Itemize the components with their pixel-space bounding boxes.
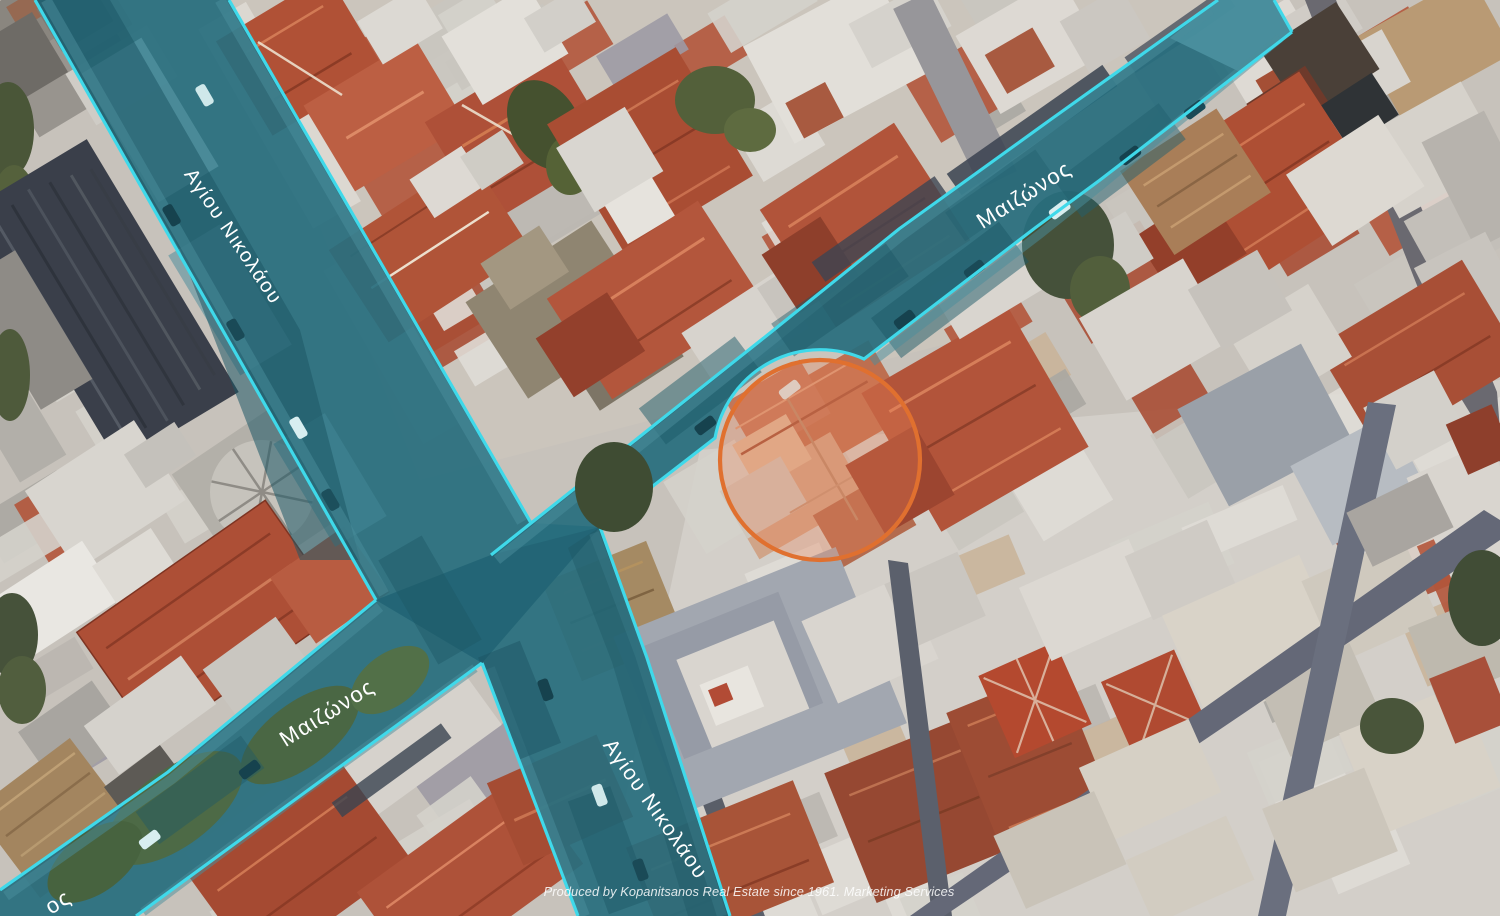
svg-text:Produced by Kopanitsanos Real: Produced by Kopanitsanos Real Estate sin…: [544, 884, 955, 899]
